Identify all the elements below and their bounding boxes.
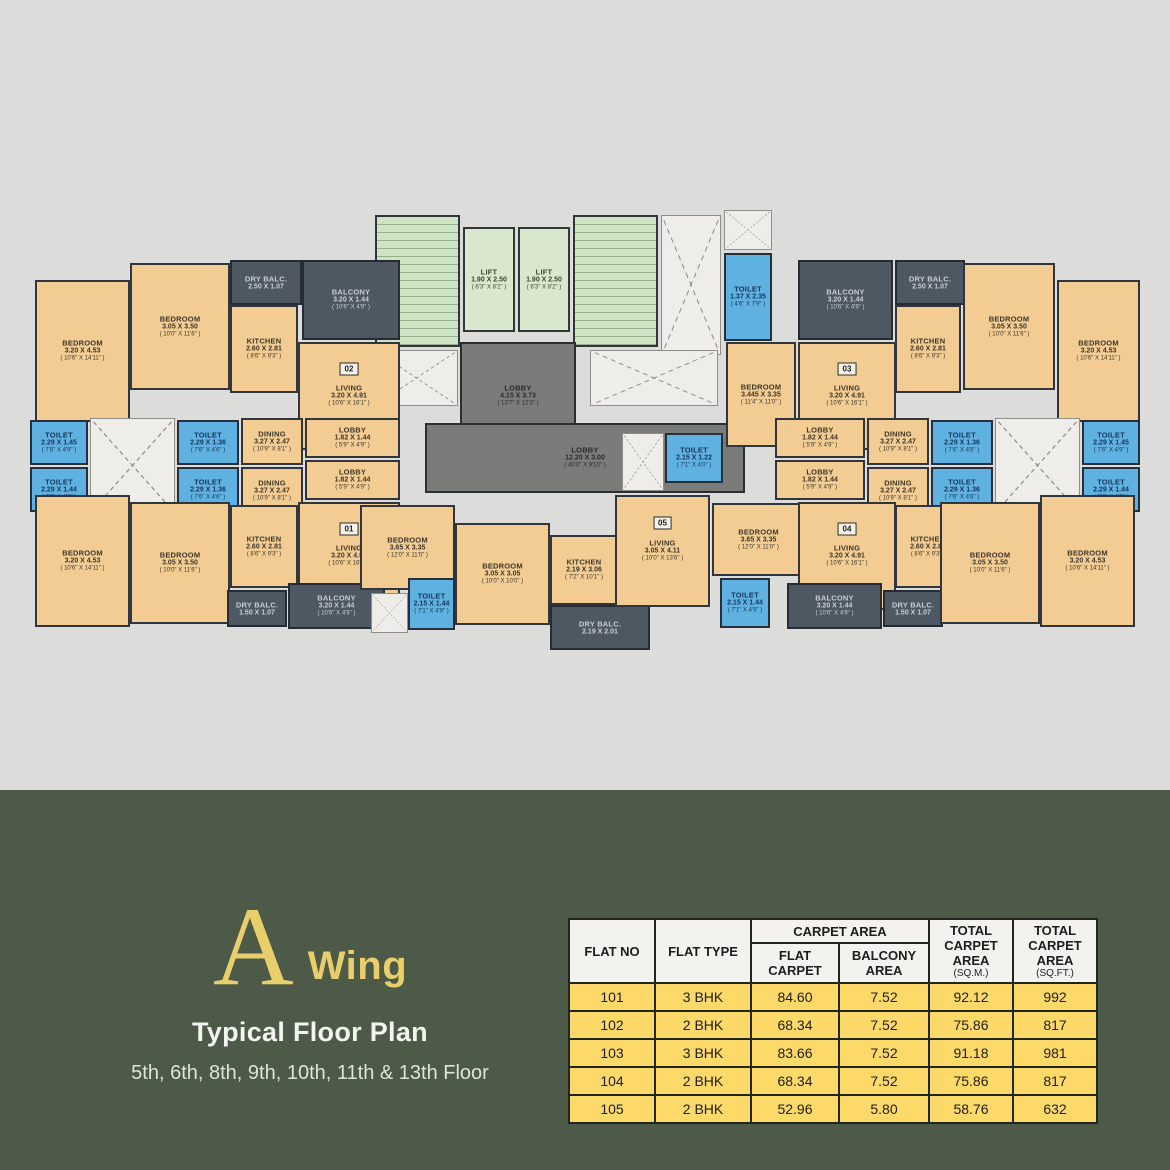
header-flat-carpet: FLAT CARPET	[751, 943, 839, 983]
flat-number-badge: 02	[340, 362, 359, 375]
room-label: BEDROOM3.20 X 4.53( 10'6" X 14'11" )	[35, 549, 130, 574]
room-label: BEDROOM3.65 X 3.35( 12'0" X 11'0" )	[360, 535, 455, 560]
room-label: DINING3.27 X 2.47( 10'9" X 8'1" )	[241, 478, 303, 503]
header-total-sqm: TOTAL CARPET AREA (SQ.M.)	[929, 919, 1013, 983]
table-row: 1033 BHK83.667.5291.18981	[569, 1039, 1097, 1067]
room-kitchen-02: KITCHEN2.60 X 2.81( 8'6" X 9'3" )	[230, 305, 298, 393]
table-cell: 992	[1013, 983, 1097, 1011]
room-kitchen-03: KITCHEN2.60 X 2.81( 8'6" X 9'3" )	[895, 305, 961, 393]
header-flat-type: FLAT TYPE	[655, 919, 751, 983]
table-cell: 2 BHK	[655, 1095, 751, 1123]
table-cell: 83.66	[751, 1039, 839, 1067]
room-dry-balc-03: DRY BALC.2.50 X 1.07	[895, 260, 965, 305]
wing-letter: A	[213, 900, 294, 995]
table-cell: 103	[569, 1039, 655, 1067]
room-stair-right	[573, 215, 658, 347]
room-shaft-right-core	[590, 350, 718, 406]
room-label: LIFT1.90 X 2.50( 6'3" X 8'2" )	[463, 267, 515, 292]
table-row: 1042 BHK68.347.5275.86817	[569, 1067, 1097, 1095]
room-label: DRY BALC.2.19 X 2.01	[550, 619, 650, 636]
header-carpet-area: CARPET AREA	[751, 919, 929, 943]
room-bedroom-04-a: BEDROOM3.20 X 4.53( 10'6" X 14'11" )	[1040, 495, 1135, 627]
header-total-sqft-sub: (SQ.FT.)	[1018, 968, 1092, 979]
table-cell: 105	[569, 1095, 655, 1123]
room-bedroom-03-b: BEDROOM3.05 X 3.50( 10'0" X 11'6" )	[963, 263, 1055, 390]
room-label: TOILET2.15 X 1.22( 7'1" X 4'0" )	[665, 446, 723, 471]
flat-number-badge: 03	[838, 362, 857, 375]
shaft-x-icon	[662, 216, 720, 354]
table-row: 1022 BHK68.347.5275.86817	[569, 1011, 1097, 1039]
room-dry-balc-05: DRY BALC.2.19 X 2.01	[550, 605, 650, 650]
room-toilet-03-2: TOILET2.29 X 1.36( 7'6" X 4'6" )	[931, 420, 993, 465]
room-label: BEDROOM3.05 X 3.50( 10'0" X 11'6" )	[130, 314, 230, 339]
shaft-x-icon	[725, 211, 771, 249]
table-cell: 101	[569, 983, 655, 1011]
plan-subtitle: Typical Floor Plan	[95, 1017, 525, 1048]
table-cell: 102	[569, 1011, 655, 1039]
room-bedroom-03-a: BEDROOM3.20 X 4.53( 10'6" X 14'11" )	[1057, 280, 1140, 422]
room-label: BEDROOM3.20 X 4.53( 10'6" X 14'11" )	[1040, 549, 1135, 574]
table-cell: 75.86	[929, 1067, 1013, 1095]
title-block: A Wing Typical Floor Plan 5th, 6th, 8th,…	[95, 900, 525, 1085]
room-label: KITCHEN2.19 X 3.06( 7'2" X 10'1" )	[550, 558, 618, 583]
table-cell: 7.52	[839, 1067, 929, 1095]
info-panel: A Wing Typical Floor Plan 5th, 6th, 8th,…	[0, 790, 1170, 1170]
room-label: LIVING3.20 X 4.91( 10'6" X 16'1" )	[798, 544, 896, 569]
room-shaft-core	[661, 215, 721, 355]
table-cell: 91.18	[929, 1039, 1013, 1067]
room-label: TOILET2.29 X 1.45( 7'6" X 4'9" )	[1082, 430, 1140, 455]
table-cell: 92.12	[929, 983, 1013, 1011]
room-toilet-05-a: TOILET2.15 X 1.44( 7'1" X 4'9" )	[408, 578, 455, 630]
room-label: LOBBY1.82 X 1.44( 5'9" X 4'9" )	[305, 468, 400, 493]
room-label: DINING3.27 X 2.47( 10'9" X 8'1" )	[241, 429, 303, 454]
room-label: KITCHEN2.60 X 2.81( 8'6" X 9'3" )	[895, 337, 961, 362]
room-dry-balc-01: DRY BALC.1.50 X 1.07	[227, 590, 287, 627]
flat-area-table: FLAT NO FLAT TYPE CARPET AREA TOTAL CARP…	[568, 918, 1098, 1124]
room-label: TOILET2.29 X 1.36( 7'6" X 4'6" )	[177, 477, 239, 502]
room-label: BALCONY3.20 X 1.44( 10'6" X 4'9" )	[798, 288, 893, 313]
room-label: LIFT1.90 X 2.50( 6'3" X 8'2" )	[518, 267, 570, 292]
room-bedroom-01-a: BEDROOM3.20 X 4.53( 10'6" X 14'11" )	[35, 495, 130, 627]
room-label: BEDROOM3.20 X 4.53( 10'6" X 14'11" )	[1057, 339, 1140, 364]
shaft-x-icon	[591, 351, 717, 405]
room-label: LIVING3.05 X 4.11( 10'0" X 13'6" )	[615, 539, 710, 564]
room-label: DINING3.27 X 2.47( 10'9" X 8'1" )	[867, 478, 929, 503]
room-label: LOBBY1.82 X 1.44( 5'9" X 4'9" )	[775, 468, 865, 493]
room-bedroom-04-c: BEDROOM3.65 X 3.35( 12'0" X 11'0" )	[712, 503, 805, 576]
room-label: DRY BALC.1.50 X 1.07	[227, 600, 287, 617]
table-cell: 5.80	[839, 1095, 929, 1123]
room-toilet-04-a: TOILET2.15 X 1.44( 7'1" X 4'9" )	[720, 578, 770, 628]
room-label: BEDROOM3.65 X 3.35( 12'0" X 11'0" )	[712, 527, 805, 552]
floors-list: 5th, 6th, 8th, 9th, 10th, 11th & 13th Fl…	[95, 1062, 525, 1085]
room-label: DINING3.27 X 2.47( 10'9" X 8'1" )	[867, 429, 929, 454]
header-flat-no: FLAT NO	[569, 919, 655, 983]
room-label: TOILET2.29 X 1.36( 7'6" X 4'6" )	[931, 477, 993, 502]
table-cell: 3 BHK	[655, 1039, 751, 1067]
table-row: 1052 BHK52.965.8058.76632	[569, 1095, 1097, 1123]
room-label: DRY BALC.2.50 X 1.07	[230, 274, 302, 291]
table-row: 1013 BHK84.607.5292.12992	[569, 983, 1097, 1011]
room-label: TOILET2.15 X 1.44( 7'1" X 4'9" )	[720, 591, 770, 616]
table-cell: 2 BHK	[655, 1067, 751, 1095]
table-cell: 7.52	[839, 983, 929, 1011]
table-cell: 632	[1013, 1095, 1097, 1123]
flat-number-badge: 01	[340, 522, 359, 535]
room-bedroom-01-b: BEDROOM3.05 X 3.50( 10'0" X 11'6" )	[130, 502, 230, 624]
header-total-sqft: TOTAL CARPET AREA (SQ.FT.)	[1013, 919, 1097, 983]
room-label: LOBBY4.15 X 3.73( 13'7" X 12'3" )	[460, 384, 576, 409]
room-living-05: LIVING3.05 X 4.11( 10'0" X 13'6" )05	[615, 495, 710, 607]
room-toilet-02-2: TOILET2.29 X 1.36( 7'6" X 4'6" )	[177, 420, 239, 465]
room-bedroom-02-b: BEDROOM3.05 X 3.50( 10'0" X 11'6" )	[130, 263, 230, 390]
room-shaft-05-left	[371, 593, 408, 633]
table-cell: 2 BHK	[655, 1011, 751, 1039]
room-label: KITCHEN2.60 X 2.81( 8'6" X 9'3" )	[230, 337, 298, 362]
room-balcony-04: BALCONY3.20 X 1.44( 10'6" X 4'9" )	[787, 583, 882, 629]
room-toilet-02-1: TOILET2.29 X 1.45( 7'6" X 4'9" )	[30, 420, 88, 465]
room-lobby-01: LOBBY1.82 X 1.44( 5'9" X 4'9" )	[305, 460, 400, 500]
room-toilet-core: TOILET1.37 X 2.35( 4'6" X 7'9" )	[724, 253, 772, 341]
room-label: BALCONY3.20 X 1.44( 10'6" X 4'9" )	[302, 288, 400, 313]
room-toilet-05-b: TOILET2.15 X 1.22( 7'1" X 4'0" )	[665, 433, 723, 483]
room-label: TOILET2.29 X 1.45( 7'6" X 4'9" )	[30, 430, 88, 455]
room-lift-2: LIFT1.90 X 2.50( 6'3" X 8'2" )	[518, 227, 570, 332]
room-label: BEDROOM3.05 X 3.50( 10'0" X 11'6" )	[130, 551, 230, 576]
room-label: TOILET1.37 X 2.35( 4'6" X 7'9" )	[724, 285, 772, 310]
table-cell: 75.86	[929, 1011, 1013, 1039]
room-label: BEDROOM3.445 X 3.35( 11'4" X 11'0" )	[726, 382, 796, 407]
table-cell: 7.52	[839, 1011, 929, 1039]
room-label: TOILET2.29 X 1.36( 7'6" X 4'6" )	[177, 430, 239, 455]
table-cell: 68.34	[751, 1067, 839, 1095]
room-label: DRY BALC.1.50 X 1.07	[883, 600, 943, 617]
plan-background: LIFT1.90 X 2.50( 6'3" X 8'2" )LIFT1.90 X…	[0, 0, 1170, 790]
room-label: BEDROOM3.05 X 3.50( 10'0" X 11'6" )	[940, 551, 1040, 576]
room-kitchen-01: KITCHEN2.60 X 2.81( 8'6" X 9'3" )	[230, 505, 298, 588]
table-cell: 981	[1013, 1039, 1097, 1067]
room-dining-03: DINING3.27 X 2.47( 10'9" X 8'1" )	[867, 418, 929, 465]
header-total-sqm-sub: (SQ.M.)	[934, 968, 1008, 979]
room-label: TOILET2.15 X 1.44( 7'1" X 4'9" )	[408, 592, 455, 617]
room-bedroom-05: BEDROOM3.05 X 3.05( 10'0" X 10'0" )	[455, 523, 550, 625]
room-shaft-core-top	[724, 210, 772, 250]
room-label: TOILET2.29 X 1.36( 7'6" X 4'6" )	[931, 430, 993, 455]
room-label: LOBBY1.82 X 1.44( 5'9" X 4'9" )	[775, 426, 865, 451]
room-dry-balc-02: DRY BALC.2.50 X 1.07	[230, 260, 302, 305]
room-kitchen-05: KITCHEN2.19 X 3.06( 7'2" X 10'1" )	[550, 535, 618, 605]
flat-number-badge: 05	[653, 516, 672, 529]
room-lobby-02: LOBBY1.82 X 1.44( 5'9" X 4'9" )	[305, 418, 400, 458]
room-lobby-04: LOBBY1.82 X 1.44( 5'9" X 4'9" )	[775, 460, 865, 500]
room-balcony-02: BALCONY3.20 X 1.44( 10'6" X 4'9" )	[302, 260, 400, 340]
wing-word: Wing	[308, 944, 407, 989]
room-label: LIVING3.20 X 4.91( 10'6" X 16'1" )	[798, 384, 896, 409]
table-cell: 7.52	[839, 1039, 929, 1067]
room-label: DRY BALC.2.50 X 1.07	[895, 274, 965, 291]
room-bedroom-04-b: BEDROOM3.05 X 3.50( 10'0" X 11'6" )	[940, 502, 1040, 624]
flat-number-badge: 04	[838, 522, 857, 535]
table-cell: 104	[569, 1067, 655, 1095]
table-cell: 817	[1013, 1011, 1097, 1039]
room-label: BALCONY3.20 X 1.44( 10'6" X 4'9" )	[787, 594, 882, 619]
room-label: KITCHEN2.60 X 2.81( 8'6" X 9'3" )	[230, 534, 298, 559]
room-label: LIVING3.20 X 4.91( 10'6" X 16'1" )	[298, 384, 400, 409]
shaft-x-icon	[623, 434, 663, 490]
room-shaft-05-top	[622, 433, 664, 491]
room-label: BEDROOM3.20 X 4.53( 10'6" X 14'11" )	[35, 339, 130, 364]
floor-plan: LIFT1.90 X 2.50( 6'3" X 8'2" )LIFT1.90 X…	[30, 205, 1140, 680]
table-cell: 52.96	[751, 1095, 839, 1123]
header-total-sqm-main: TOTAL CARPET AREA	[944, 923, 997, 968]
room-dining-02: DINING3.27 X 2.47( 10'9" X 8'1" )	[241, 418, 303, 465]
table-cell: 817	[1013, 1067, 1097, 1095]
flat-table-head: FLAT NO FLAT TYPE CARPET AREA TOTAL CARP…	[569, 919, 1097, 983]
shaft-x-icon	[372, 594, 407, 632]
table-cell: 58.76	[929, 1095, 1013, 1123]
room-lift-1: LIFT1.90 X 2.50( 6'3" X 8'2" )	[463, 227, 515, 332]
room-label: BEDROOM3.05 X 3.05( 10'0" X 10'0" )	[455, 562, 550, 587]
room-lobby-03: LOBBY1.82 X 1.44( 5'9" X 4'9" )	[775, 418, 865, 458]
room-label: LOBBY1.82 X 1.44( 5'9" X 4'9" )	[305, 426, 400, 451]
table-cell: 84.60	[751, 983, 839, 1011]
header-total-sqft-main: TOTAL CARPET AREA	[1028, 923, 1081, 968]
room-bedroom-02-a: BEDROOM3.20 X 4.53( 10'6" X 14'11" )	[35, 280, 130, 422]
wing-title: A Wing	[95, 900, 525, 995]
table-cell: 3 BHK	[655, 983, 751, 1011]
room-balcony-03: BALCONY3.20 X 1.44( 10'6" X 4'9" )	[798, 260, 893, 340]
room-label: BEDROOM3.05 X 3.50( 10'0" X 11'6" )	[963, 314, 1055, 339]
room-dry-balc-04: DRY BALC.1.50 X 1.07	[883, 590, 943, 627]
room-toilet-03-1: TOILET2.29 X 1.45( 7'6" X 4'9" )	[1082, 420, 1140, 465]
header-balcony-area: BALCONY AREA	[839, 943, 929, 983]
table-cell: 68.34	[751, 1011, 839, 1039]
flat-table-body: 1013 BHK84.607.5292.129921022 BHK68.347.…	[569, 983, 1097, 1123]
